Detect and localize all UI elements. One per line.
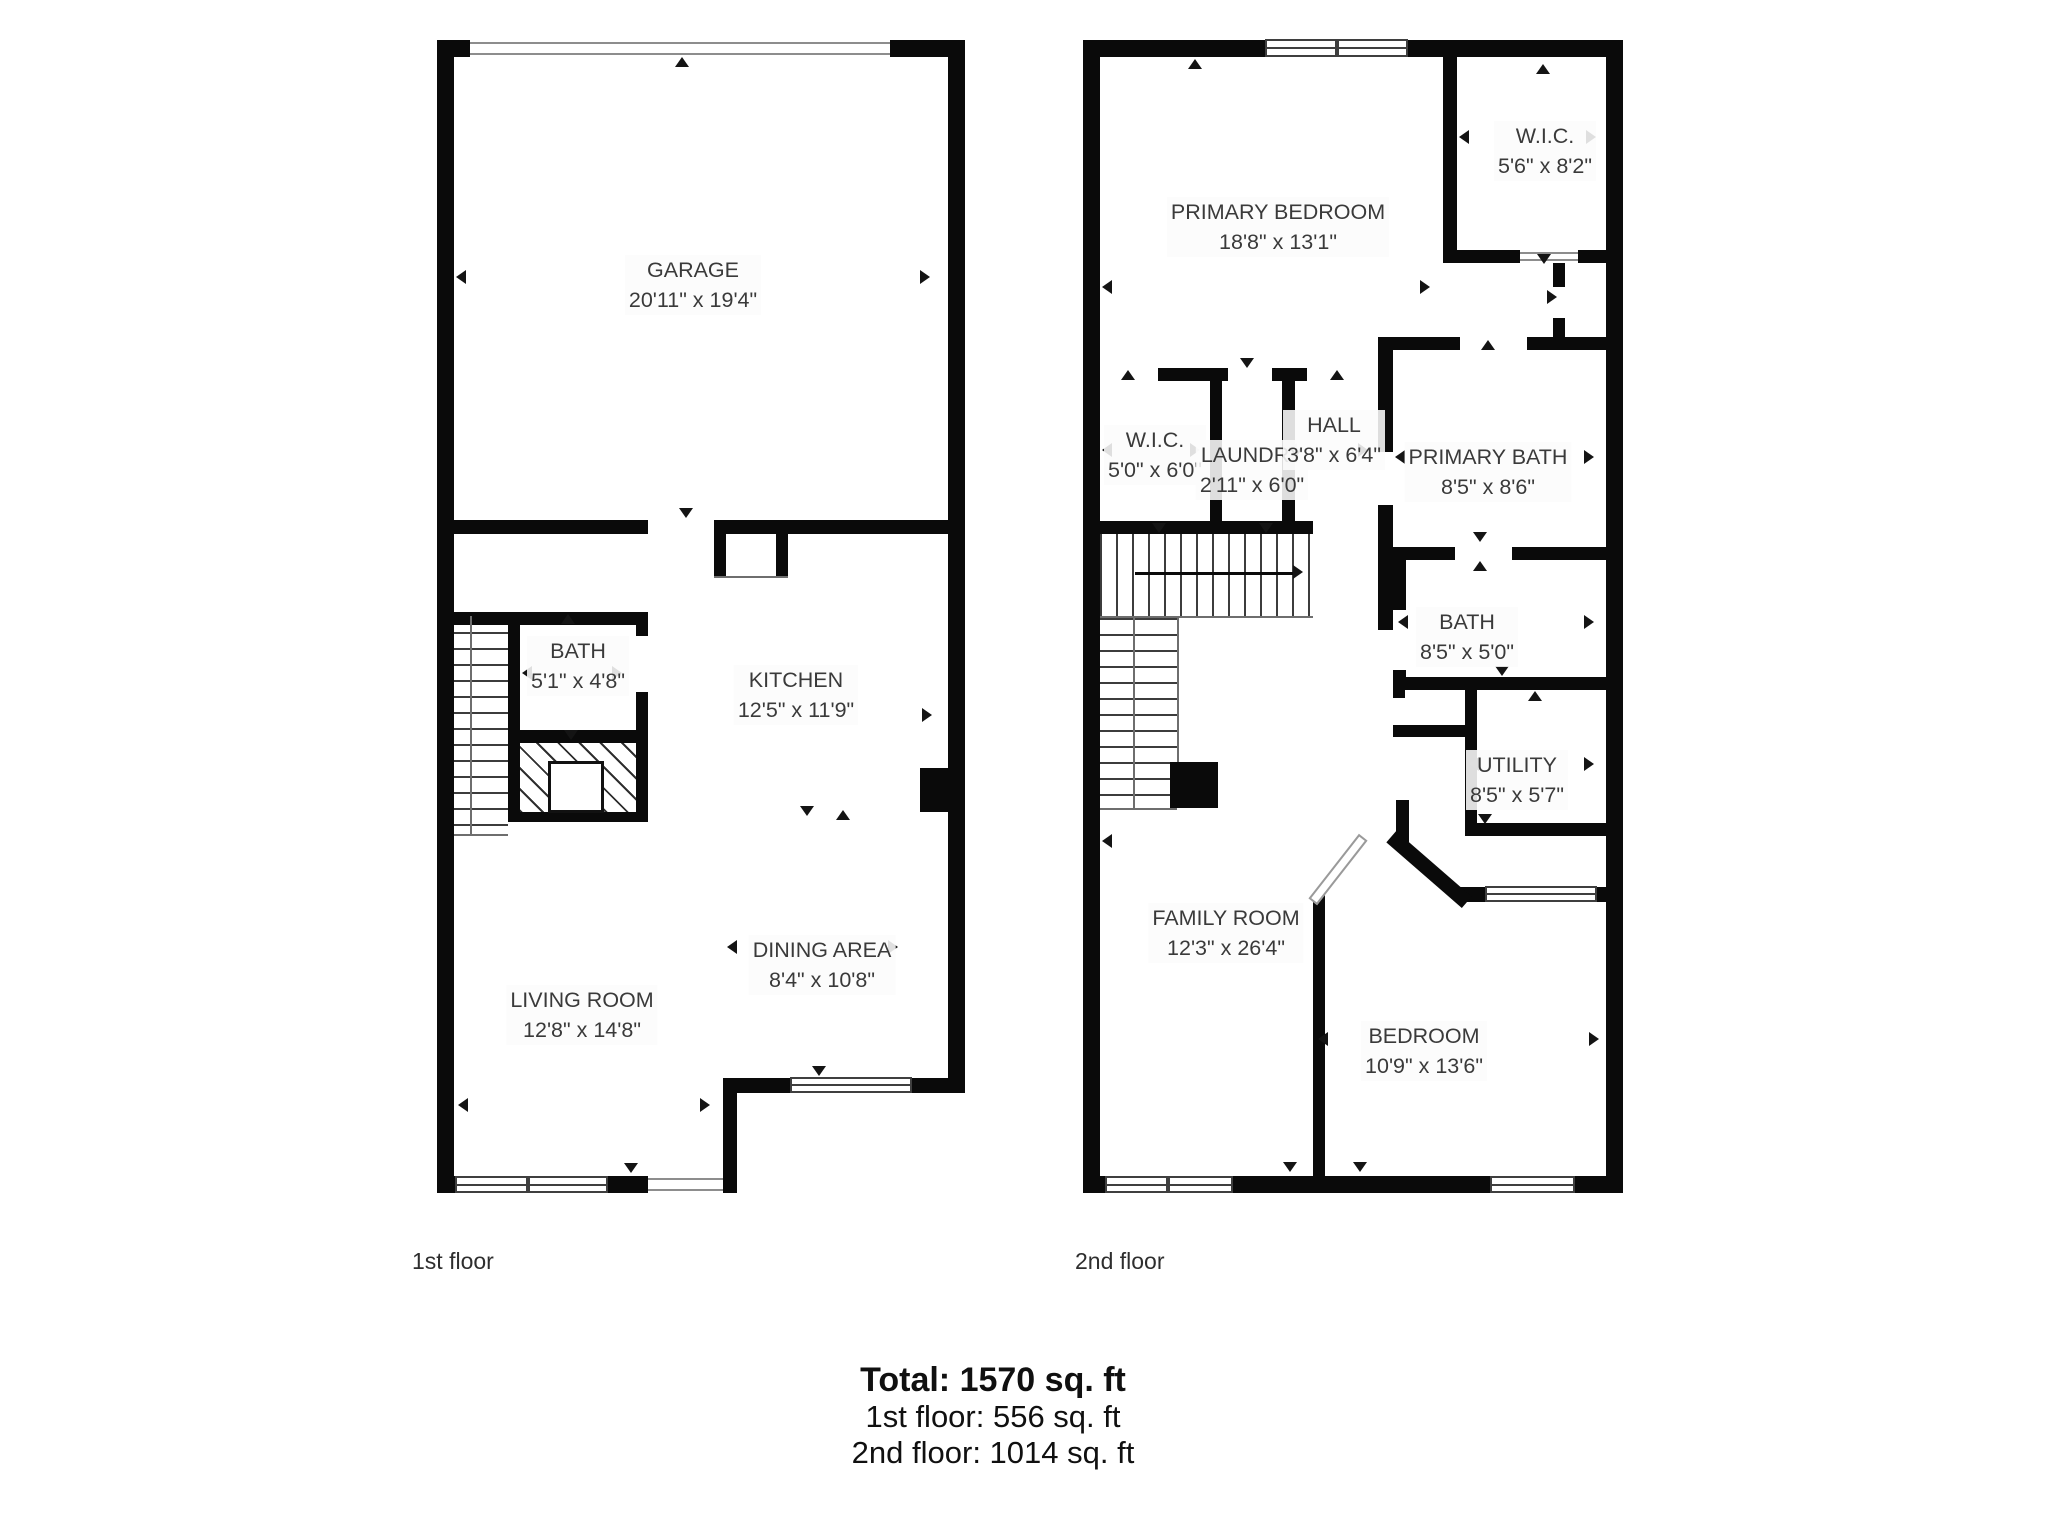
arrow-marker-icon xyxy=(1473,561,1487,571)
room-dims: 2'11" x 6'0" xyxy=(1196,470,1308,500)
arrow-marker-icon xyxy=(1528,691,1542,701)
arrow-marker-icon xyxy=(1547,290,1557,304)
arrow-marker-icon xyxy=(1330,370,1344,380)
arrow-marker-icon xyxy=(1536,64,1550,74)
room-label-primary-bath: PRIMARY BATH 8'5" x 8'6" xyxy=(1405,442,1572,502)
arrow-marker-icon xyxy=(1589,1032,1599,1046)
wall xyxy=(1408,40,1623,57)
room-dims: 5'6" x 8'2" xyxy=(1494,151,1596,181)
wall xyxy=(607,1176,648,1193)
area-summary: Total: 1570 sq. ft 1st floor: 556 sq. ft… xyxy=(852,1362,1135,1471)
room-dims: 12'8" x 14'8" xyxy=(506,1015,657,1045)
arrow-marker-icon xyxy=(675,57,689,67)
window xyxy=(1485,886,1597,902)
wall xyxy=(714,534,726,578)
staircase xyxy=(1100,618,1177,808)
second-floor-area: 2nd floor: 1014 sq. ft xyxy=(852,1435,1135,1471)
arrow-marker-icon xyxy=(1121,370,1135,380)
room-dims: 3'8" x 6'4" xyxy=(1283,440,1385,470)
room-dims: 5'1" x 4'8" xyxy=(527,666,629,696)
stair-direction-arrow-icon xyxy=(1293,565,1303,579)
room-label-wic-lower: W.I.C. 5'0" x 6'0" xyxy=(1104,425,1206,485)
room-name: DINING AREA xyxy=(749,935,896,965)
arrow-marker-icon xyxy=(1353,1162,1367,1172)
room-dims: 12'5" x 11'9" xyxy=(734,695,858,725)
room-name: W.I.C. xyxy=(1104,425,1206,455)
wall xyxy=(454,520,648,534)
arrow-marker-icon xyxy=(1283,1162,1297,1172)
room-name: PRIMARY BATH xyxy=(1405,442,1572,472)
arrow-marker-icon xyxy=(1584,450,1594,464)
wall xyxy=(1597,887,1623,902)
arrow-marker-icon xyxy=(1102,280,1112,294)
floor-caption-1st: 1st floor xyxy=(412,1248,494,1275)
arrow-marker-icon xyxy=(1152,523,1166,533)
room-label-living-room: LIVING ROOM 12'8" x 14'8" xyxy=(506,985,657,1045)
staircase xyxy=(1100,534,1313,616)
window xyxy=(455,1176,528,1193)
arrow-marker-icon xyxy=(1478,814,1492,824)
room-name: W.I.C. xyxy=(1494,121,1596,151)
wall xyxy=(1512,547,1606,560)
wall xyxy=(1272,368,1307,381)
wall xyxy=(912,1078,965,1093)
wall xyxy=(1233,1176,1490,1193)
chimney xyxy=(1170,762,1218,808)
arrow-marker-icon xyxy=(1102,834,1112,848)
arrow-marker-icon xyxy=(1584,757,1594,771)
room-dims: 5'0" x 6'0" xyxy=(1104,455,1206,485)
arrow-marker-icon xyxy=(1318,1032,1328,1046)
wall xyxy=(1457,250,1520,263)
room-label-garage: GARAGE 20'11" x 19'4" xyxy=(625,255,761,315)
wall xyxy=(1083,40,1100,1193)
wall xyxy=(1158,368,1228,381)
room-label-kitchen: KITCHEN 12'5" x 11'9" xyxy=(734,665,858,725)
stair-direction-line xyxy=(1135,572,1295,575)
window xyxy=(790,1077,912,1093)
arrow-marker-icon xyxy=(800,806,814,816)
garage-door-opening xyxy=(470,42,890,55)
room-name: FAMILY ROOM xyxy=(1148,903,1303,933)
window xyxy=(528,1176,608,1193)
wall xyxy=(636,612,648,636)
room-dims: 10'9" x 13'6" xyxy=(1361,1051,1487,1081)
stair-rail-line xyxy=(1100,616,1313,618)
arrow-marker-icon xyxy=(564,730,578,740)
wall xyxy=(1465,823,1606,836)
room-label-bath-2nd: BATH 8'5" x 5'0" xyxy=(1416,607,1518,667)
room-label-bedroom: BEDROOM 10'9" x 13'6" xyxy=(1361,1021,1487,1081)
wall xyxy=(437,40,454,1193)
arrow-marker-icon xyxy=(920,270,930,284)
window xyxy=(1168,1176,1233,1193)
room-dims: 8'5" x 5'0" xyxy=(1416,637,1518,667)
wall xyxy=(1393,547,1455,560)
room-label-utility: UTILITY 8'5" x 5'7" xyxy=(1466,750,1568,810)
wall xyxy=(1393,690,1405,698)
arrow-marker-icon xyxy=(1395,450,1405,464)
stair-edge-line xyxy=(1100,808,1177,810)
wall xyxy=(1083,1176,1105,1193)
arrow-marker-icon xyxy=(727,940,737,954)
first-floor-area: 1st floor: 556 sq. ft xyxy=(852,1399,1135,1435)
angled-door-opening xyxy=(1308,834,1367,905)
window xyxy=(1265,39,1337,57)
room-name: PRIMARY BEDROOM xyxy=(1167,197,1389,227)
wall xyxy=(454,612,648,625)
arrow-marker-icon xyxy=(1240,358,1254,368)
wall xyxy=(437,40,470,57)
wall xyxy=(948,40,965,1093)
arrow-marker-icon xyxy=(561,614,575,624)
floor-plan-canvas: GARAGE 20'11" x 19'4" BATH 5'1" x 4'8" K… xyxy=(0,0,2048,1536)
water-heater xyxy=(548,761,604,813)
room-label-wic-upper: W.I.C. 5'6" x 8'2" xyxy=(1494,121,1596,181)
room-dims: 8'5" x 8'6" xyxy=(1405,472,1572,502)
arrow-marker-icon xyxy=(624,1163,638,1173)
wall xyxy=(1393,560,1406,610)
wall xyxy=(1606,40,1623,1193)
total-area: Total: 1570 sq. ft xyxy=(852,1362,1135,1399)
wall xyxy=(1378,505,1393,630)
chimney xyxy=(920,768,948,812)
arrow-marker-icon xyxy=(456,270,466,284)
wall xyxy=(508,812,648,822)
wall xyxy=(1553,318,1565,337)
wall xyxy=(1393,677,1606,690)
angled-wall xyxy=(1386,831,1471,908)
window xyxy=(1490,1176,1575,1193)
wall xyxy=(776,534,788,578)
arrow-marker-icon xyxy=(836,810,850,820)
room-name: KITCHEN xyxy=(734,665,858,695)
wall xyxy=(636,743,648,822)
arrow-marker-icon xyxy=(1584,615,1594,629)
wall xyxy=(1575,1176,1623,1193)
closet-front-line xyxy=(714,576,788,578)
wall xyxy=(508,730,648,743)
room-name: BEDROOM xyxy=(1361,1021,1487,1051)
wall xyxy=(723,1078,737,1193)
arrow-marker-icon xyxy=(1537,254,1551,264)
room-name: GARAGE xyxy=(625,255,761,285)
room-label-hall: HALL 3'8" x 6'4" xyxy=(1283,410,1385,470)
arrow-marker-icon xyxy=(1188,59,1202,69)
wall xyxy=(508,612,520,822)
stair-divider-line xyxy=(1133,618,1135,808)
room-name: BATH xyxy=(527,636,629,666)
room-dims: 8'4" x 10'8" xyxy=(749,965,896,995)
arrow-marker-icon xyxy=(1473,532,1487,542)
arrow-marker-icon xyxy=(922,708,932,722)
arrow-marker-icon xyxy=(812,1066,826,1076)
arrow-marker-icon xyxy=(1495,666,1509,676)
wall xyxy=(1443,57,1457,263)
wall xyxy=(1083,40,1265,57)
arrow-marker-icon xyxy=(1481,340,1495,350)
wall xyxy=(1393,337,1460,350)
wall xyxy=(437,1176,457,1193)
room-label-family-room: FAMILY ROOM 12'3" x 26'4" xyxy=(1148,903,1303,963)
room-label-dining-area: DINING AREA 8'4" x 10'8" xyxy=(749,935,896,995)
wall xyxy=(1100,521,1313,534)
window xyxy=(1337,39,1408,57)
staircase xyxy=(454,616,508,836)
arrow-marker-icon xyxy=(1459,130,1469,144)
room-name: BATH xyxy=(1416,607,1518,637)
wall xyxy=(1553,263,1565,287)
room-label-primary-bedroom: PRIMARY BEDROOM 18'8" x 13'1" xyxy=(1167,197,1389,257)
arrow-marker-icon xyxy=(1259,523,1273,533)
room-label-bath-1st: BATH 5'1" x 4'8" xyxy=(527,636,629,696)
wall xyxy=(1527,337,1623,350)
wall xyxy=(1578,250,1623,263)
wall xyxy=(714,520,948,534)
room-name: HALL xyxy=(1283,410,1385,440)
room-name: LIVING ROOM xyxy=(506,985,657,1015)
arrow-marker-icon xyxy=(700,1098,710,1112)
stair-rail-line xyxy=(1177,618,1179,765)
room-dims: 18'8" x 13'1" xyxy=(1167,227,1389,257)
door-opening xyxy=(648,1178,723,1191)
arrow-marker-icon xyxy=(679,508,693,518)
room-dims: 20'11" x 19'4" xyxy=(625,285,761,315)
arrow-marker-icon xyxy=(1420,280,1430,294)
stair-divider-line xyxy=(470,616,472,836)
floor-caption-2nd: 2nd floor xyxy=(1075,1248,1165,1275)
stair-edge-line xyxy=(454,834,508,836)
arrow-marker-icon xyxy=(1398,615,1408,629)
window xyxy=(1105,1176,1168,1193)
room-dims: 8'5" x 5'7" xyxy=(1466,780,1568,810)
room-name: UTILITY xyxy=(1466,750,1568,780)
room-dims: 12'3" x 26'4" xyxy=(1148,933,1303,963)
arrow-marker-icon xyxy=(458,1098,468,1112)
